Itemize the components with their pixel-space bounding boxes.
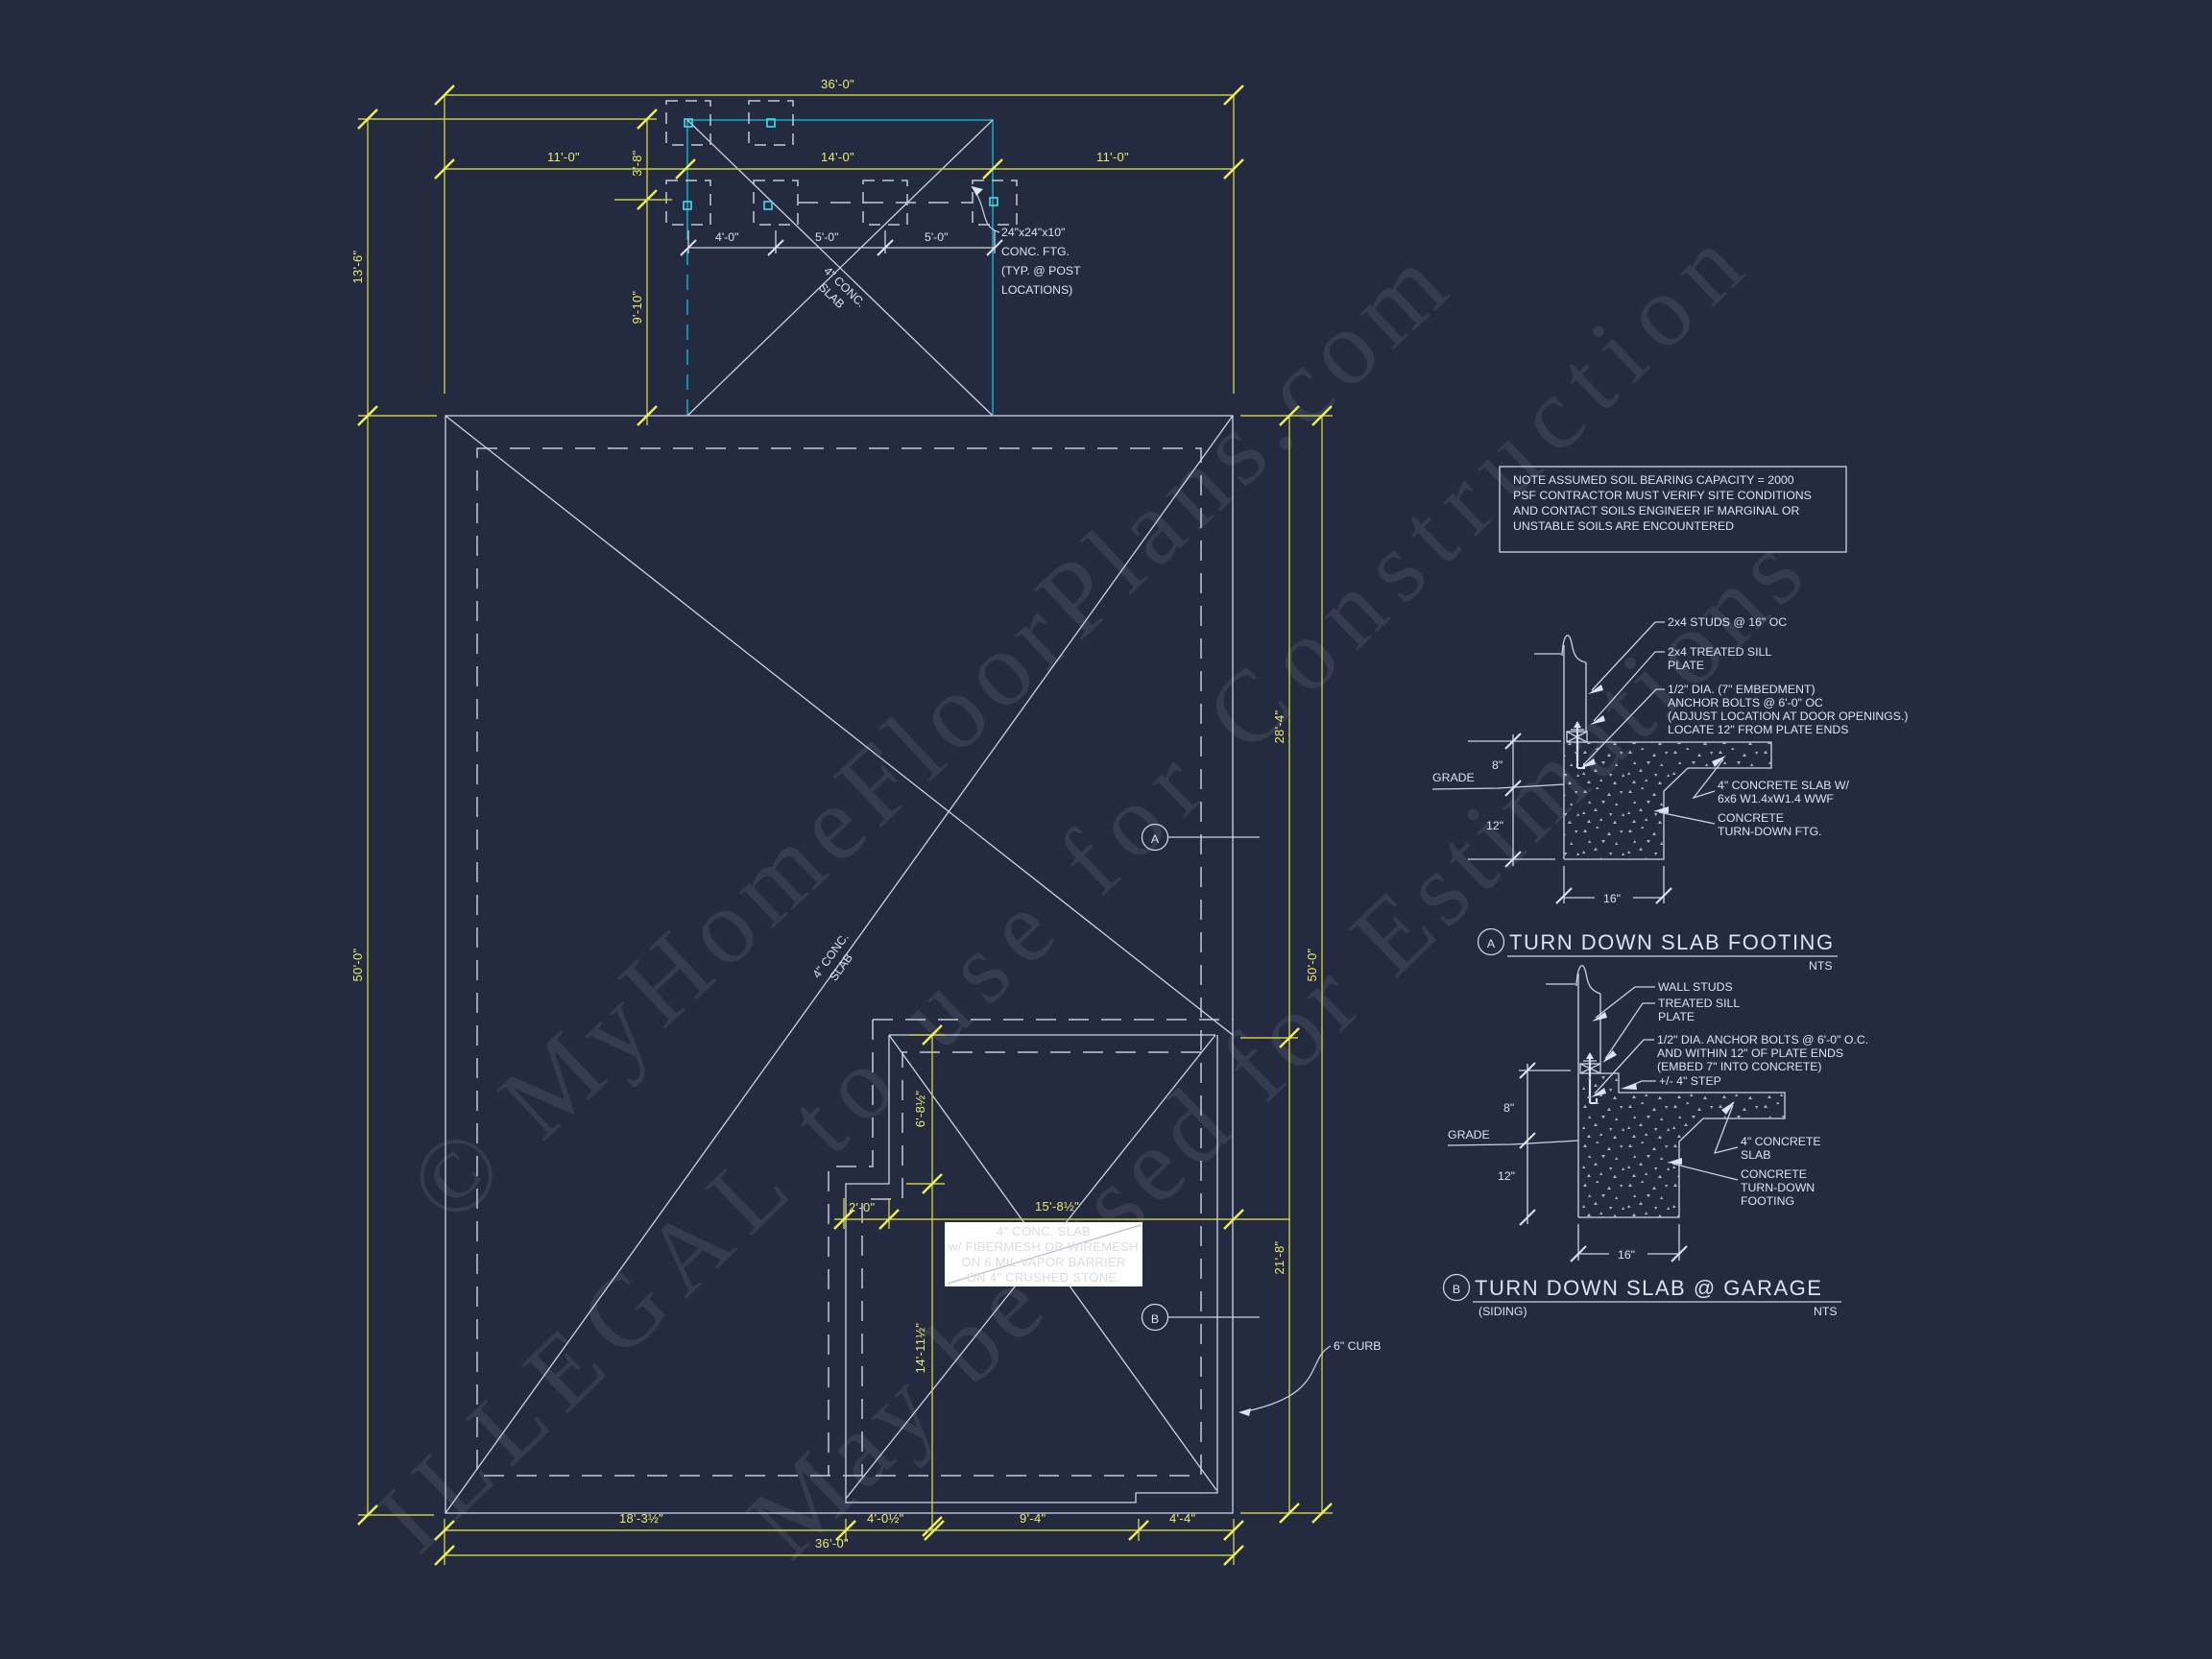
svg-text:GRADE: GRADE [1448, 1128, 1490, 1142]
svg-text:(SIDING): (SIDING) [1479, 1305, 1527, 1318]
svg-text:6'-8½": 6'-8½" [913, 1091, 927, 1128]
svg-text:TREATED SILL: TREATED SILL [1658, 997, 1740, 1010]
svg-text:4" CONCRETE SLAB W/: 4" CONCRETE SLAB W/ [1718, 779, 1850, 792]
svg-text:FOOTING: FOOTING [1741, 1194, 1794, 1208]
svg-text:13'-6": 13'-6" [350, 250, 365, 283]
svg-text:11'-0": 11'-0" [547, 150, 580, 164]
svg-text:11'-0": 11'-0" [1096, 150, 1129, 164]
svg-text:1/2" DIA. (7" EMBEDMENT): 1/2" DIA. (7" EMBEDMENT) [1668, 683, 1815, 696]
svg-text:ILLEGAL to use for Constructio: ILLEGAL to use for Construction [356, 198, 1774, 1573]
svg-text:36'-0": 36'-0" [815, 1536, 849, 1551]
svg-text:NOTE ASSUMED SOIL BEARING CAPA: NOTE ASSUMED SOIL BEARING CAPACITY = 200… [1513, 473, 1794, 487]
svg-text:16": 16" [1618, 1248, 1635, 1262]
svg-text:GRADE: GRADE [1432, 771, 1475, 784]
svg-text:21'-8": 21'-8" [1272, 1240, 1286, 1274]
svg-text:3'-8": 3'-8" [630, 150, 644, 176]
svg-text:TURN-DOWN FTG.: TURN-DOWN FTG. [1718, 825, 1822, 838]
svg-text:2x4 TREATED SILL: 2x4 TREATED SILL [1668, 645, 1771, 659]
svg-text:50'-0": 50'-0" [350, 948, 365, 981]
svg-text:LOCATE 12" FROM PLATE ENDS: LOCATE 12" FROM PLATE ENDS [1668, 723, 1848, 736]
svg-text:36'-0": 36'-0" [821, 77, 854, 91]
svg-text:UNSTABLE SOILS ARE ENCOUNTERED: UNSTABLE SOILS ARE ENCOUNTERED [1513, 519, 1734, 533]
svg-text:A: A [1151, 832, 1160, 846]
svg-text:NTS: NTS [1814, 1305, 1838, 1318]
svg-text:5'-0": 5'-0" [925, 230, 949, 244]
svg-text:2x4 STUDS @ 16" OC: 2x4 STUDS @ 16" OC [1668, 615, 1787, 629]
svg-text:18'-3½": 18'-3½" [619, 1511, 663, 1526]
svg-text:NTS: NTS [1809, 959, 1833, 973]
svg-text:TURN DOWN SLAB FOOTING: TURN DOWN SLAB FOOTING [1509, 930, 1835, 954]
svg-text:B: B [1151, 1312, 1159, 1326]
svg-text:CONCRETE: CONCRETE [1718, 811, 1784, 825]
svg-text:B: B [1453, 1283, 1460, 1296]
svg-text:ON 4" CRUSHED STONE.: ON 4" CRUSHED STONE. [967, 1270, 1121, 1285]
svg-text:4'-4": 4'-4" [1169, 1511, 1195, 1526]
svg-text:CONC. FTG.: CONC. FTG. [1001, 245, 1070, 258]
svg-text:TURN-DOWN: TURN-DOWN [1741, 1181, 1815, 1194]
svg-text:15'-8½": 15'-8½" [1035, 1199, 1079, 1214]
svg-text:TURN DOWN SLAB @ GARAGE: TURN DOWN SLAB @ GARAGE [1475, 1276, 1822, 1300]
svg-text:24"x24"x10": 24"x24"x10" [1001, 226, 1065, 239]
svg-text:4" CONC. SLAB: 4" CONC. SLAB [997, 1224, 1091, 1238]
svg-text:(TYP. @ POST: (TYP. @ POST [1001, 264, 1081, 277]
svg-text:LOCATIONS): LOCATIONS) [1001, 283, 1072, 297]
svg-text:w/ FIBERMESH OR WIREMESH: w/ FIBERMESH OR WIREMESH [948, 1239, 1139, 1254]
svg-text:9'-4": 9'-4" [1020, 1511, 1046, 1526]
svg-text:(ADJUST LOCATION AT DOOR OPENI: (ADJUST LOCATION AT DOOR OPENINGS.) [1668, 709, 1909, 723]
svg-text:12": 12" [1486, 819, 1503, 832]
svg-text:1/2" DIA. ANCHOR BOLTS @ 6'-0": 1/2" DIA. ANCHOR BOLTS @ 6'-0" O.C. [1657, 1033, 1868, 1046]
svg-text:14'-11½": 14'-11½" [913, 1323, 927, 1374]
svg-text:+/- 4" STEP: +/- 4" STEP [1659, 1074, 1721, 1088]
svg-text:12": 12" [1498, 1169, 1515, 1183]
svg-text:4" CONCRETE: 4" CONCRETE [1741, 1135, 1821, 1148]
svg-text:8": 8" [1503, 1101, 1514, 1115]
svg-text:4'-0": 4'-0" [715, 230, 739, 244]
svg-text:A: A [1487, 937, 1496, 950]
svg-text:PLATE: PLATE [1668, 659, 1704, 672]
svg-text:6x6 W1.4xW1.4 WWF: 6x6 W1.4xW1.4 WWF [1718, 792, 1834, 805]
svg-text:6" CURB: 6" CURB [1334, 1339, 1381, 1353]
svg-text:PLATE: PLATE [1658, 1010, 1695, 1023]
svg-text:AND CONTACT SOILS ENGINEER IF: AND CONTACT SOILS ENGINEER IF MARGINAL O… [1513, 504, 1799, 517]
svg-text:PSF CONTRACTOR MUST VERIFY SIT: PSF CONTRACTOR MUST VERIFY SITE CONDITIO… [1513, 489, 1812, 502]
svg-text:WALL STUDS: WALL STUDS [1658, 980, 1733, 994]
svg-text:ON 6 MIL VAPOR BARRIER: ON 6 MIL VAPOR BARRIER [961, 1255, 1125, 1269]
svg-text:5'-0": 5'-0" [815, 230, 839, 244]
svg-text:50'-0": 50'-0" [1305, 948, 1319, 981]
svg-text:28'-4": 28'-4" [1272, 709, 1286, 743]
svg-text:16": 16" [1603, 892, 1621, 905]
svg-text:ANCHOR BOLTS @ 6'-0" OC: ANCHOR BOLTS @ 6'-0" OC [1668, 696, 1823, 709]
svg-text:2'-0": 2'-0" [849, 1200, 875, 1214]
svg-text:CONCRETE: CONCRETE [1741, 1167, 1807, 1181]
svg-text:14'-0": 14'-0" [821, 150, 854, 164]
svg-text:AND WITHIN 12" OF PLATE ENDS: AND WITHIN 12" OF PLATE ENDS [1657, 1046, 1843, 1060]
svg-text:SLAB: SLAB [1741, 1148, 1770, 1162]
svg-text:8": 8" [1492, 758, 1503, 772]
svg-text:(EMBED 7" INTO CONCRETE): (EMBED 7" INTO CONCRETE) [1657, 1060, 1822, 1073]
svg-text:9'-10": 9'-10" [630, 290, 644, 324]
svg-text:4'-0½": 4'-0½" [867, 1511, 904, 1526]
